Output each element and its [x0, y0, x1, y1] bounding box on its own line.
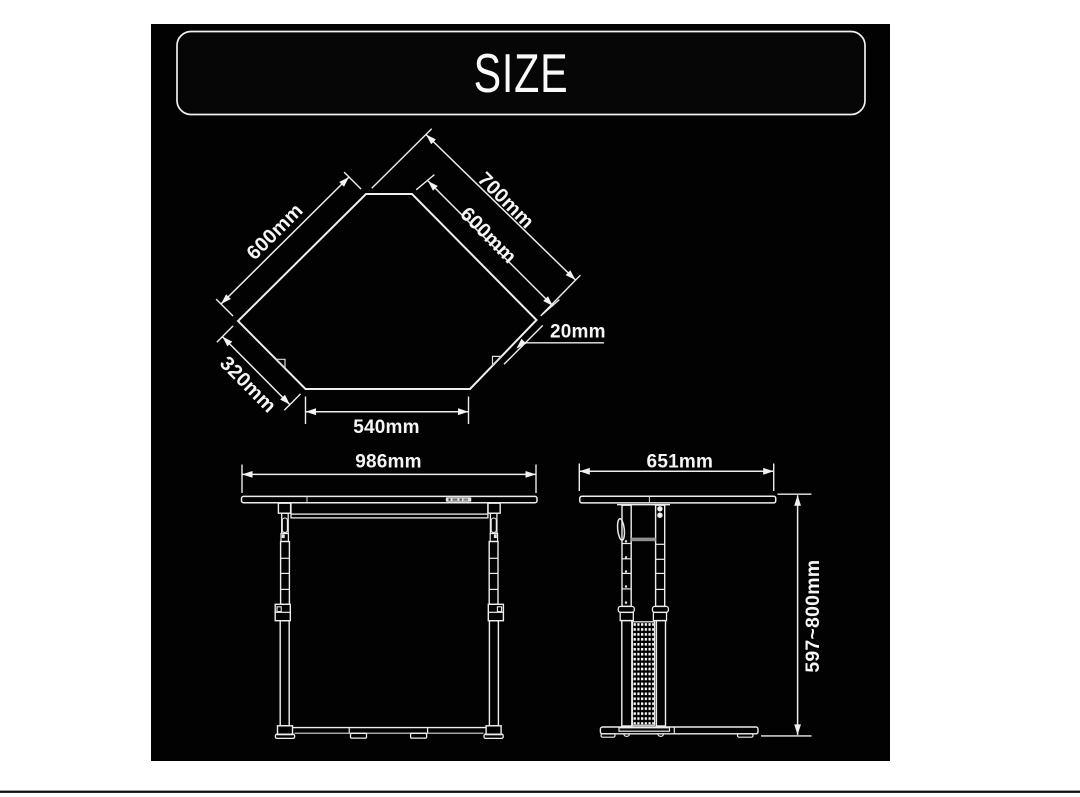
svg-text:651mm: 651mm: [647, 451, 714, 472]
svg-text:986mm: 986mm: [355, 451, 422, 472]
svg-text:SIZE: SIZE: [474, 43, 569, 104]
svg-text:597~800mm: 597~800mm: [802, 560, 824, 673]
svg-text:20mm: 20mm: [550, 322, 606, 343]
svg-text:540mm: 540mm: [353, 417, 420, 438]
